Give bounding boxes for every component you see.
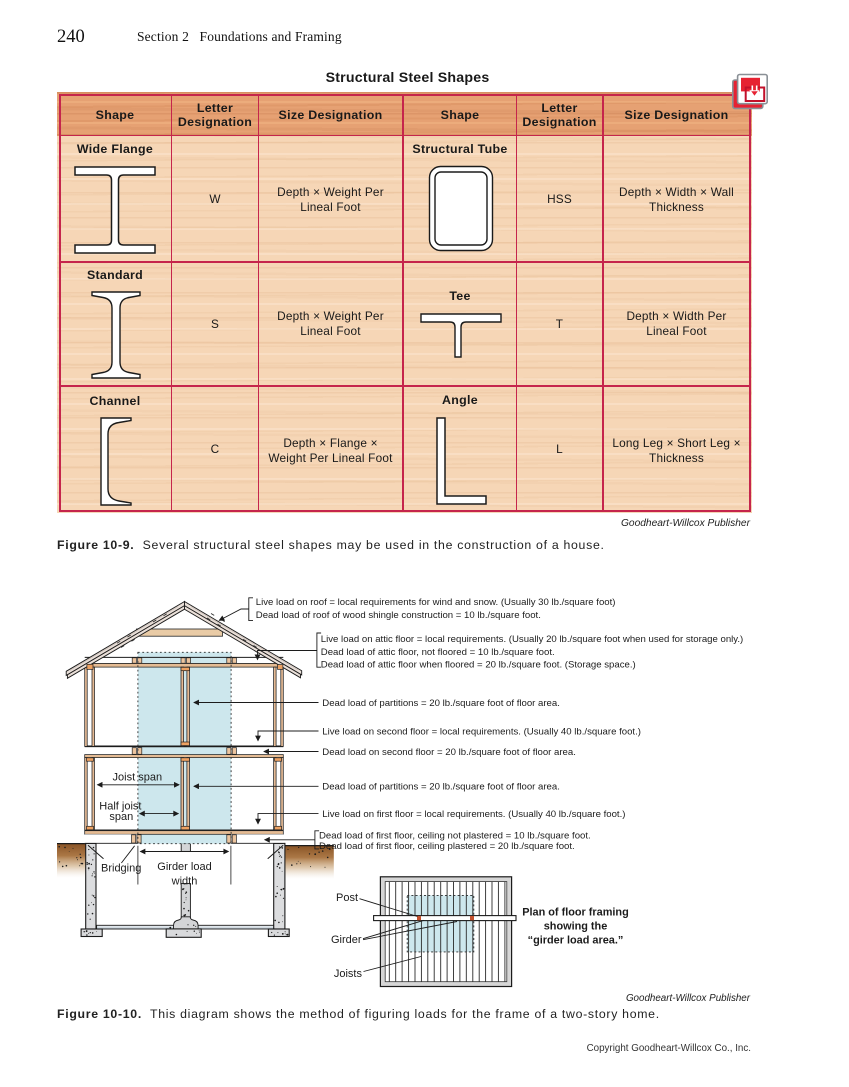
svg-text:Girder load: Girder load bbox=[157, 861, 211, 873]
svg-text:Girder: Girder bbox=[331, 934, 362, 946]
svg-text:span: span bbox=[109, 811, 133, 823]
svg-text:width: width bbox=[171, 875, 198, 887]
svg-text:Live load on first floor = loc: Live load on first floor = local require… bbox=[322, 809, 625, 820]
svg-text:“girder load area.”: “girder load area.” bbox=[528, 934, 624, 946]
svg-text:Plan of floor framing: Plan of floor framing bbox=[522, 907, 629, 919]
svg-text:Bridging: Bridging bbox=[101, 862, 141, 874]
svg-text:Dead load of attic floor, not: Dead load of attic floor, not floored = … bbox=[321, 647, 555, 658]
svg-text:Dead load of partitions = 20 l: Dead load of partitions = 20 lb./square … bbox=[322, 782, 560, 793]
svg-text:Goodheart-Willcox Publisher: Goodheart-Willcox Publisher bbox=[626, 993, 751, 1004]
svg-text:Joist span: Joist span bbox=[113, 771, 163, 783]
svg-text:Live load on attic floor = loc: Live load on attic floor = local require… bbox=[321, 634, 743, 645]
svg-text:Dead load of first floor, ceil: Dead load of first floor, ceiling plaste… bbox=[319, 841, 575, 852]
svg-text:showing the: showing the bbox=[544, 921, 608, 933]
svg-text:Dead load of attic floor when: Dead load of attic floor when floored = … bbox=[321, 660, 636, 671]
svg-text:Joists: Joists bbox=[334, 968, 363, 980]
svg-text:Live load on second floor = lo: Live load on second floor = local requir… bbox=[322, 726, 641, 737]
svg-text:Dead load of first floor, ceil: Dead load of first floor, ceiling not pl… bbox=[319, 830, 591, 841]
svg-text:Dead load on second floor = 20: Dead load on second floor = 20 lb./squar… bbox=[322, 747, 576, 758]
svg-text:Dead load of partitions = 20 l: Dead load of partitions = 20 lb./square … bbox=[322, 698, 560, 709]
svg-text:Post: Post bbox=[336, 892, 358, 904]
svg-text:Dead load of roof of wood shin: Dead load of roof of wood shingle constr… bbox=[256, 610, 541, 621]
svg-text:Live load on roof = local requ: Live load on roof = local requirements f… bbox=[256, 597, 616, 608]
